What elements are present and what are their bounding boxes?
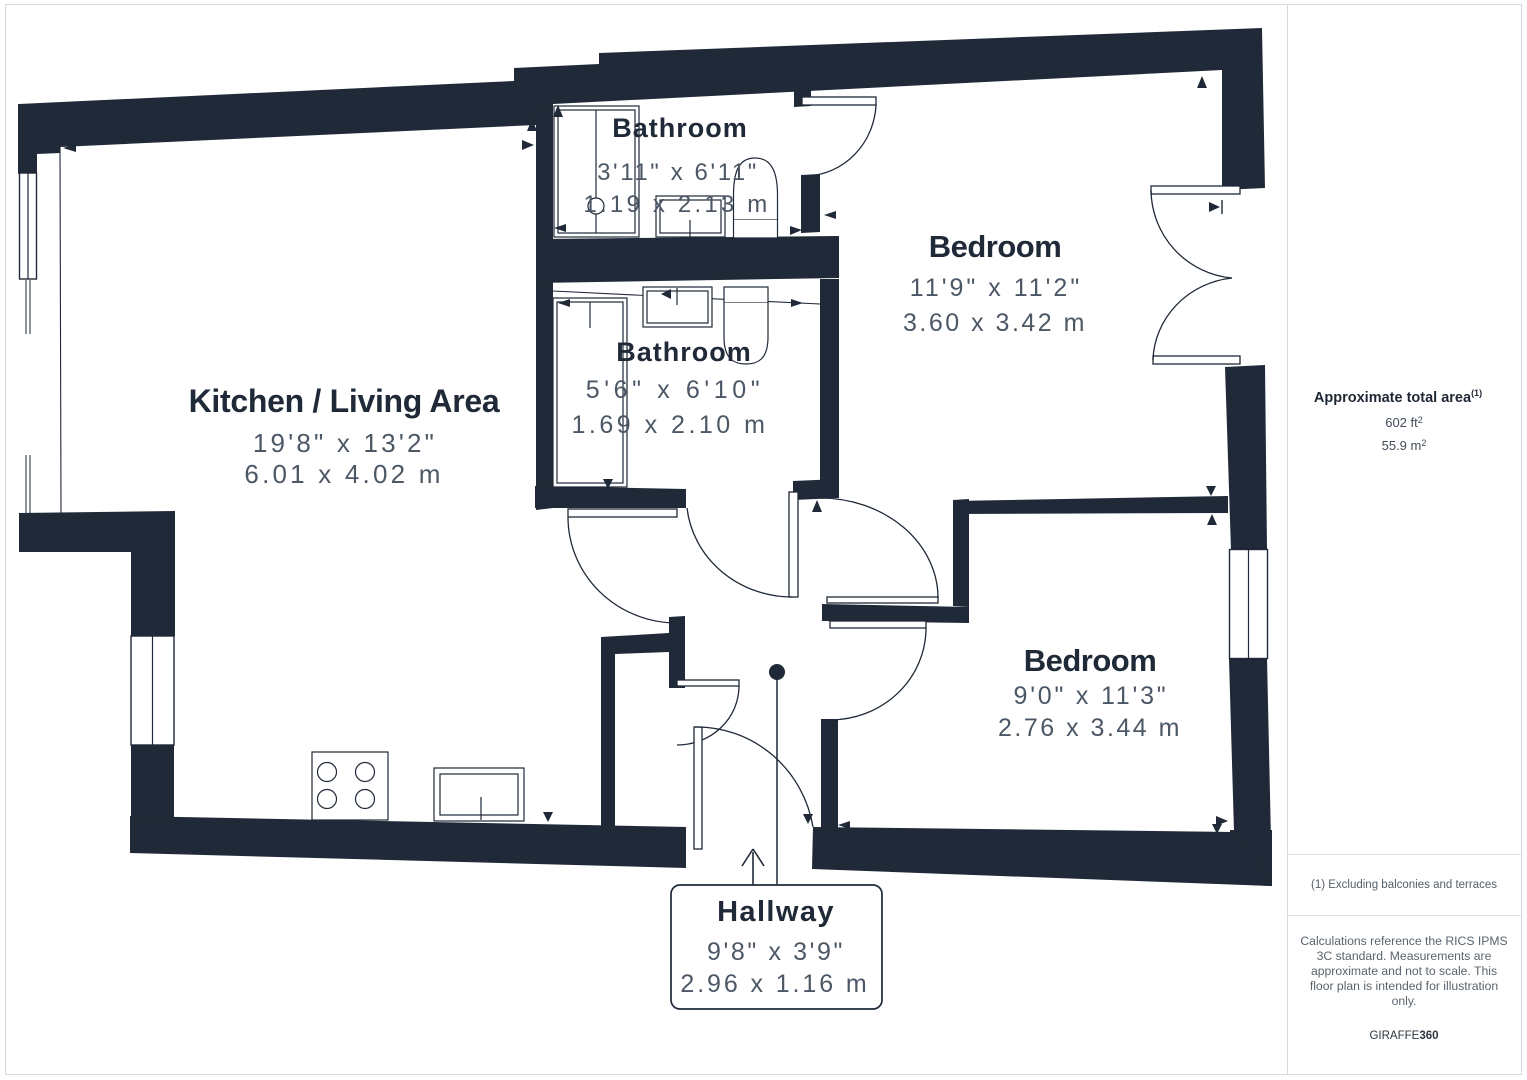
svg-text:3'11" x 6'11": 3'11" x 6'11" [597,159,759,186]
svg-text:11'9" x 11'2": 11'9" x 11'2" [910,274,1082,302]
svg-text:9'8" x 3'9": 9'8" x 3'9" [707,938,845,966]
svg-text:2.76 x 3.44 m: 2.76 x 3.44 m [998,714,1182,742]
svg-text:5'6" x 6'10": 5'6" x 6'10" [586,376,764,404]
svg-text:approximate and not to scale.: approximate and not to scale. This [1311,964,1497,978]
svg-text:9'0" x 11'3": 9'0" x 11'3" [1014,682,1169,710]
svg-text:3C standard. Measurements are: 3C standard. Measurements are [1317,949,1492,963]
svg-text:1.19 x 2.13 m: 1.19 x 2.13 m [583,191,770,218]
svg-text:6.01 x 4.02 m: 6.01 x 4.02 m [244,459,443,489]
svg-text:3.60 x 3.42 m: 3.60 x 3.42 m [903,309,1087,337]
svg-text:1.69 x 2.10 m: 1.69 x 2.10 m [572,411,769,439]
svg-text:Bathroom: Bathroom [616,337,752,367]
svg-text:602 ft2: 602 ft2 [1385,415,1423,430]
svg-text:19'8" x 13'2": 19'8" x 13'2" [253,428,437,458]
svg-text:GIRAFFE360: GIRAFFE360 [1369,1030,1438,1042]
svg-text:floor plan is intended for ill: floor plan is intended for illustration [1310,979,1498,993]
svg-text:Bathroom: Bathroom [612,113,748,143]
svg-text:Bedroom: Bedroom [929,229,1062,264]
svg-text:55.9 m2: 55.9 m2 [1382,438,1427,453]
svg-text:only.: only. [1392,994,1417,1008]
svg-text:2.96 x 1.16 m: 2.96 x 1.16 m [680,970,869,998]
svg-text:Calculations reference the RIC: Calculations reference the RICS IPMS [1300,934,1507,948]
svg-text:Kitchen / Living Area: Kitchen / Living Area [189,383,500,419]
svg-text:(1) Excluding balconies and te: (1) Excluding balconies and terraces [1311,879,1497,891]
svg-text:Bedroom: Bedroom [1024,643,1157,678]
svg-text:Hallway: Hallway [717,896,835,928]
svg-text:Approximate total area(1): Approximate total area(1) [1314,388,1482,406]
